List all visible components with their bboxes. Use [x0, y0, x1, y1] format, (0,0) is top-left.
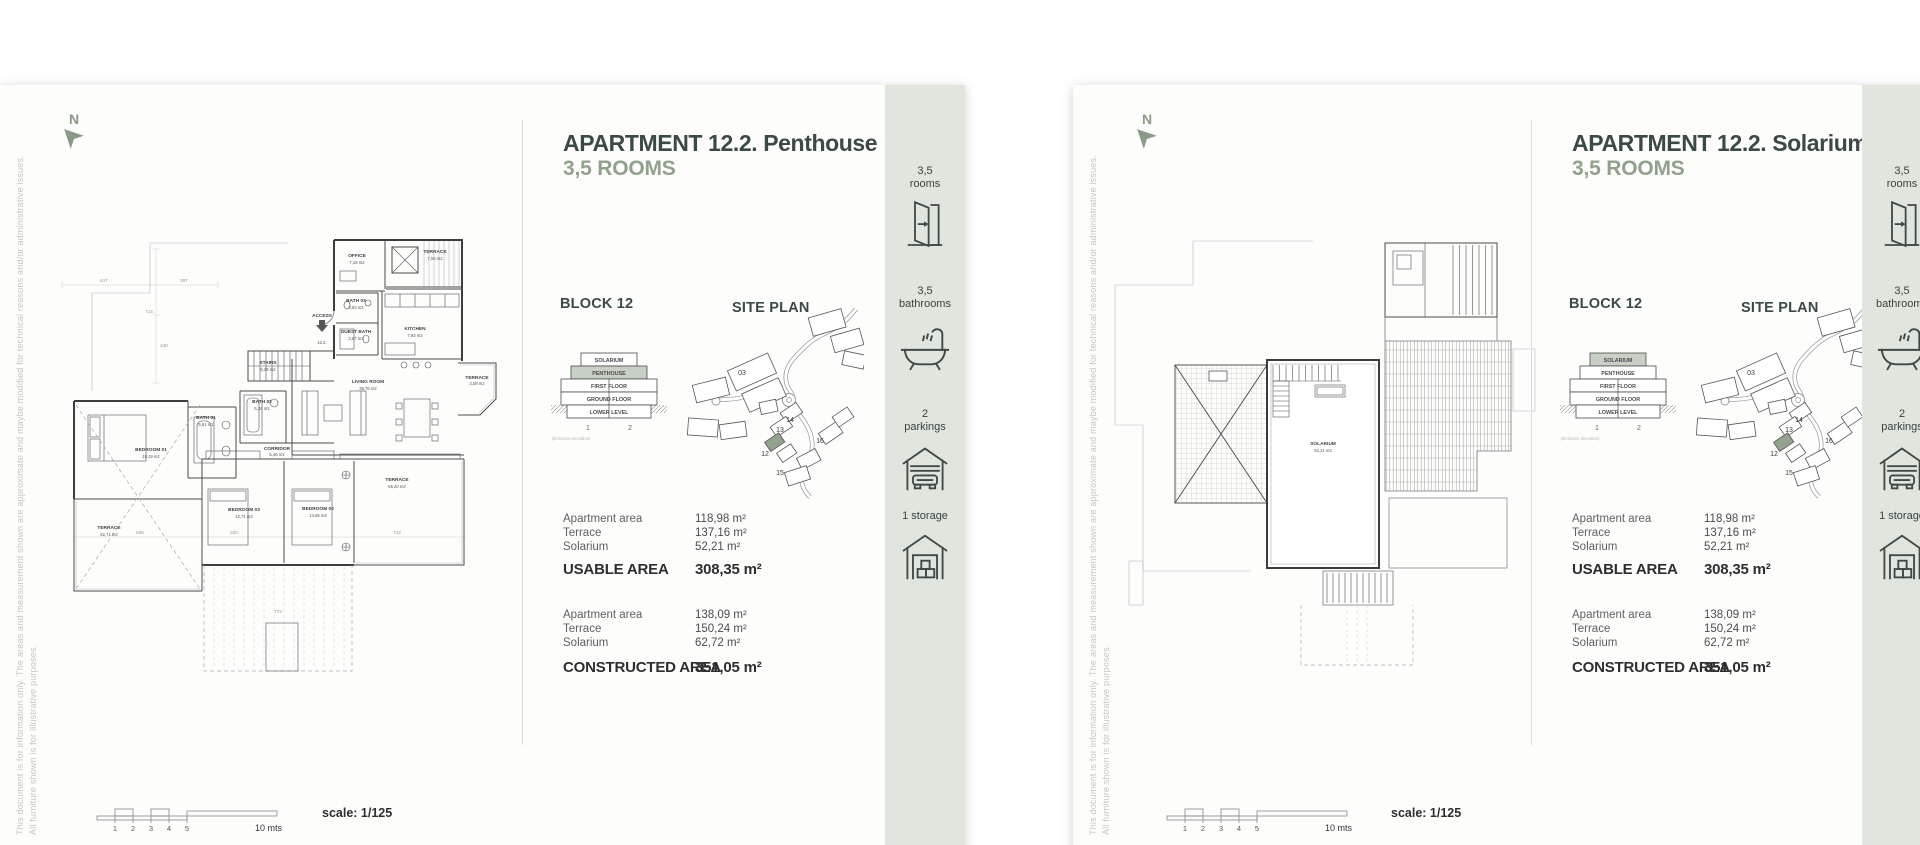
total-label: USABLE AREA — [1572, 561, 1678, 578]
block-label: BLOCK 12 — [560, 296, 633, 312]
scale-tick: 1 — [1183, 824, 1187, 833]
room-label-guest-bath: GUEST BATH — [341, 329, 372, 335]
dim-label: 320 — [230, 530, 238, 535]
rooms-count: 3,5 — [1862, 165, 1920, 178]
stack-floor-first: FIRST FLOOR — [1600, 384, 1636, 390]
panel-divider — [1531, 120, 1532, 745]
stack-caption: (Entrance elevation) — [552, 436, 591, 441]
area-row: Terrace150,24 m² — [563, 623, 823, 635]
block-14-label: 14 — [1795, 417, 1803, 424]
storage-count: 1 storage — [1862, 510, 1920, 523]
door-icon — [905, 200, 945, 250]
usable-area-total: USABLE AREA308,35 m² — [563, 561, 823, 578]
stack-floor-penthouse: PENTHOUSE — [1601, 371, 1635, 377]
area-value: 138,09 m² — [1704, 609, 1756, 621]
room-area: 52,21 m2 — [1314, 448, 1332, 453]
area-label: Apartment area — [563, 513, 642, 525]
stack-floor-solarium: SOLARIUM — [595, 358, 624, 364]
total-value: 351,05 m² — [695, 659, 762, 676]
scale-tick: 2 — [131, 824, 135, 833]
area-value: 118,98 m² — [1704, 513, 1755, 525]
room-area: 7,06 m2 — [427, 256, 443, 261]
scale-tick: 1 — [113, 824, 117, 833]
room-label-terrace-ne: TERRACE — [423, 249, 447, 255]
parkings-count: 2 — [885, 408, 965, 421]
rooms-count: 3,5 — [885, 165, 965, 178]
room-label-bath01: BATH 01 — [196, 415, 216, 421]
north-compass: N — [1135, 111, 1165, 159]
room-area: 19,19 m2 — [142, 454, 160, 459]
constructed-area-total: CONSTRUCTED AREA351,05 m² — [563, 659, 823, 676]
area-row: Solarium62,72 m² — [1572, 637, 1832, 649]
area-row: Solarium52,21 m² — [1572, 541, 1832, 553]
page-subtitle: 3,5 ROOMS — [1572, 157, 1685, 181]
rooms-label: rooms — [1862, 178, 1920, 191]
room-label-bedroom02: BEDROOM 02 — [302, 506, 334, 512]
feature-rooms: 3,5 rooms — [1862, 165, 1920, 255]
block-14-label: 14 — [786, 417, 794, 424]
block-13-label: 13 — [776, 427, 784, 434]
area-label: Apartment area — [563, 609, 642, 621]
living-room-furniture — [292, 359, 464, 455]
area-value: 62,72 m² — [695, 637, 740, 649]
area-label: Solarium — [1572, 541, 1617, 553]
room-label-office: OFFICE — [348, 253, 366, 259]
site-plan-map: 03 14 13 12 16 15 — [686, 301, 864, 499]
building-stack-diagram: SOLARIUM PENTHOUSE FIRST FLOOR GROUND FL… — [1559, 347, 1677, 447]
stack-floor-lower: LOWER LEVEL — [1599, 410, 1639, 416]
bathtub-icon — [1876, 320, 1920, 372]
area-row: Terrace150,24 m² — [1572, 623, 1832, 635]
scale-tick: 4 — [1237, 824, 1241, 833]
stack-floor-first: FIRST FLOOR — [591, 384, 627, 390]
north-arrow-icon — [1135, 127, 1159, 151]
disclaimer-line-2: All furniture shown is for illustrative … — [27, 135, 40, 835]
area-row: Terrace137,16 m² — [1572, 527, 1832, 539]
site-plan-map: 03 14 13 12 16 15 — [1695, 301, 1873, 499]
scale-end-label: 10 mts — [1325, 823, 1353, 833]
block-15-label: 15 — [1785, 470, 1793, 477]
area-value: 62,72 m² — [1704, 637, 1749, 649]
storage-icon — [1876, 532, 1920, 582]
bathrooms-label: bathrooms — [885, 298, 965, 311]
garage-car-icon — [899, 443, 951, 493]
info-panel: APARTMENT 12.2. Penthouse 3,5 ROOMS BLOC… — [540, 85, 890, 845]
room-area: 5,45 m2 — [269, 452, 285, 457]
area-value: 52,21 m² — [1704, 541, 1749, 553]
rooms-label: rooms — [885, 178, 965, 191]
door-icon — [1882, 200, 1920, 250]
building-stack-diagram: SOLARIUM PENTHOUSE FIRST FLOOR GROUND FL… — [550, 347, 668, 447]
area-label: Terrace — [1572, 527, 1610, 539]
stair-tower — [1385, 243, 1497, 341]
area-value: 52,21 m² — [695, 541, 740, 553]
stack-floor-penthouse: PENTHOUSE — [592, 371, 626, 377]
room-area: 5,51 m2 — [198, 422, 214, 427]
total-label: USABLE AREA — [563, 561, 669, 578]
access-label: ACCESS — [312, 313, 333, 319]
floor-plan-solarium: SOLARIUM 52,21 m2 — [1101, 193, 1581, 753]
block-03-label: 03 — [738, 370, 746, 377]
north-arrow-icon — [62, 127, 86, 151]
bathrooms-label: bathrooms — [1862, 298, 1920, 311]
north-label: N — [62, 111, 92, 127]
feature-parkings: 2 parkings — [1862, 408, 1920, 498]
area-row: Apartment area118,98 m² — [1572, 513, 1832, 525]
area-label: Apartment area — [1572, 609, 1651, 621]
room-label-terrace-w: TERRACE — [97, 525, 121, 531]
area-table: Apartment area118,98 m² Terrace137,16 m²… — [1572, 513, 1832, 713]
area-table: Apartment area118,98 m² Terrace137,16 m²… — [563, 513, 823, 713]
room-area: 7,18 m2 — [349, 260, 365, 265]
total-value: 308,35 m² — [1704, 561, 1771, 578]
feature-rooms: 3,5 rooms — [885, 165, 965, 255]
features-sidebar: 3,5 rooms 3,5 bathrooms — [885, 85, 965, 845]
dim-label: 772 — [274, 609, 282, 614]
area-row: Solarium52,21 m² — [563, 541, 823, 553]
storage-count: 1 storage — [885, 510, 965, 523]
area-label: Terrace — [563, 623, 601, 635]
scale-tick: 5 — [185, 824, 189, 833]
stack-col-2: 2 — [1637, 425, 1641, 432]
solarium-deck: SOLARIUM 52,21 m2 — [1267, 360, 1379, 568]
room-area: 5,26 m2 — [254, 406, 270, 411]
room-label-terrace-e: TERRACE — [385, 477, 409, 483]
room-area: 3,67 m2 — [348, 336, 364, 341]
parkings-count: 2 — [1862, 408, 1920, 421]
features-sidebar: 3,5 rooms 3,5 bathrooms — [1862, 85, 1920, 845]
area-row: Terrace137,16 m² — [563, 527, 823, 539]
stack-floor-lower: LOWER LEVEL — [590, 410, 630, 416]
disclaimer-line-1: This document is for information only. T… — [1087, 135, 1100, 835]
area-label: Apartment area — [1572, 513, 1651, 525]
area-value: 150,24 m² — [1704, 623, 1756, 635]
feature-storage: 1 storage — [885, 510, 965, 587]
highlighted-block-12 — [1774, 433, 1794, 452]
scale-tick: 5 — [1255, 824, 1259, 833]
area-label: Solarium — [1572, 637, 1617, 649]
room-label-stairs: STAIRS — [259, 360, 277, 366]
scale-tick: 2 — [1201, 824, 1205, 833]
page-solarium: This document is for information only. T… — [1073, 85, 1920, 845]
bathrooms-count: 3,5 — [885, 285, 965, 298]
dim-label: 440 — [160, 343, 168, 348]
room-area: 3,59 m2 — [469, 381, 485, 386]
brochure-spread: This document is for information only. T… — [0, 0, 1920, 845]
stairs-core — [248, 351, 334, 381]
highlighted-block-12 — [765, 433, 785, 452]
page-subtitle: 3,5 ROOMS — [563, 157, 676, 181]
area-label: Solarium — [563, 637, 608, 649]
dim-label: 712 — [393, 530, 401, 535]
dim-label: 556 — [136, 530, 144, 535]
constructed-area-total: CONSTRUCTED AREA351,05 m² — [1572, 659, 1832, 676]
stack-floor-ground: GROUND FLOOR — [1596, 397, 1640, 403]
room-area: 3,83 m2 — [348, 305, 364, 310]
room-area: 14,55 m2 — [309, 513, 327, 518]
room-label-bath02: BATH 02 — [252, 399, 272, 405]
total-value: 351,05 m² — [1704, 659, 1771, 676]
area-label: Terrace — [563, 527, 601, 539]
room-area: 5,29 m2 — [260, 367, 276, 372]
dimension-labels: 417 297 714 440 556 320 712 772 — [100, 278, 401, 614]
solarium-stairs-dashed — [204, 565, 352, 671]
scale-ratio-label: scale: 1/125 — [322, 806, 392, 820]
area-value: 138,09 m² — [695, 609, 747, 621]
room-label-bedroom01: BEDROOM 01 — [135, 447, 167, 453]
disclaimer-line-1: This document is for information only. T… — [14, 135, 27, 835]
panel-divider — [522, 120, 523, 745]
usable-area-total: USABLE AREA308,35 m² — [1572, 561, 1832, 578]
area-value: 118,98 m² — [695, 513, 746, 525]
block-12-label: 12 — [761, 451, 769, 458]
block-16-label: 16 — [816, 438, 824, 445]
bathrooms-count: 3,5 — [1862, 285, 1920, 298]
scale-tick: 4 — [167, 824, 171, 833]
disclaimer-text: This document is for information only. T… — [14, 135, 40, 835]
room-area: 62,71 m2 — [100, 532, 118, 537]
page-penthouse: This document is for information only. T… — [0, 85, 965, 845]
unit-number-label: 12.2. — [317, 340, 326, 345]
block-15-label: 15 — [776, 470, 784, 477]
stack-floor-ground: GROUND FLOOR — [587, 397, 631, 403]
block-12-label: 12 — [1770, 451, 1778, 458]
floor-plan-penthouse: 417 297 714 440 556 320 712 772 — [52, 193, 532, 753]
total-value: 308,35 m² — [695, 561, 762, 578]
feature-parkings: 2 parkings — [885, 408, 965, 498]
page-title: APARTMENT 12.2. Solarium — [1572, 130, 1867, 157]
room-label-bedroom03: BEDROOM 03 — [228, 507, 260, 513]
area-row: Apartment area138,09 m² — [1572, 609, 1832, 621]
stack-col-1: 1 — [586, 425, 590, 432]
parkings-label: parkings — [1862, 421, 1920, 434]
scale-tick: 3 — [1219, 824, 1223, 833]
dim-label: 417 — [100, 278, 108, 283]
feature-bathrooms: 3,5 bathrooms — [885, 285, 965, 377]
site-buildings — [1696, 309, 1873, 486]
stack-caption: (Entrance elevation) — [1561, 436, 1600, 441]
site-buildings — [687, 309, 864, 486]
stack-col-1: 1 — [1595, 425, 1599, 432]
garage-car-icon — [1876, 443, 1920, 493]
dim-label: 714 — [145, 309, 153, 314]
block-13-label: 13 — [1785, 427, 1793, 434]
north-compass: N — [62, 111, 92, 159]
dim-label: 297 — [180, 278, 188, 283]
room-area: 7,93 m2 — [407, 333, 423, 338]
scale-tick: 3 — [149, 824, 153, 833]
info-panel: APARTMENT 12.2. Solarium 3,5 ROOMS BLOCK… — [1549, 85, 1899, 845]
area-row: Apartment area118,98 m² — [563, 513, 823, 525]
stack-floor-solarium: SOLARIUM — [1604, 358, 1633, 364]
area-row: Apartment area138,09 m² — [563, 609, 823, 621]
feature-storage: 1 storage — [1862, 510, 1920, 587]
parkings-label: parkings — [885, 421, 965, 434]
room-area: 36,76 m2 — [359, 386, 377, 391]
east-terraces — [74, 363, 496, 591]
entry-access: ACCESS 12.2. — [312, 311, 334, 345]
north-label: N — [1135, 111, 1165, 127]
area-value: 137,16 m² — [1704, 527, 1756, 539]
room-label-solarium: SOLARIUM — [1310, 441, 1336, 447]
room-area: 12,71 m2 — [235, 514, 253, 519]
room-label-kitchen: KITCHEN — [404, 326, 426, 332]
bathtub-icon — [899, 320, 951, 372]
room-label-living: LIVING ROOM — [352, 379, 384, 385]
area-value: 137,16 m² — [695, 527, 747, 539]
area-label: Terrace — [1572, 623, 1610, 635]
block-label: BLOCK 12 — [1569, 296, 1642, 312]
feature-bathrooms: 3,5 bathrooms — [1862, 285, 1920, 377]
area-row: Solarium62,72 m² — [563, 637, 823, 649]
area-label: Solarium — [563, 541, 608, 553]
room-area: 55,20 m2 — [388, 484, 406, 489]
block-16-label: 16 — [1825, 438, 1833, 445]
scale-ratio-label: scale: 1/125 — [1391, 806, 1461, 820]
area-value: 150,24 m² — [695, 623, 747, 635]
scale-end-label: 10 mts — [255, 823, 283, 833]
storage-icon — [899, 532, 951, 582]
stack-col-2: 2 — [628, 425, 632, 432]
page-title: APARTMENT 12.2. Penthouse — [563, 130, 877, 157]
block-03-label: 03 — [1747, 370, 1755, 377]
room-label-bath03: BATH 03 — [346, 298, 366, 304]
